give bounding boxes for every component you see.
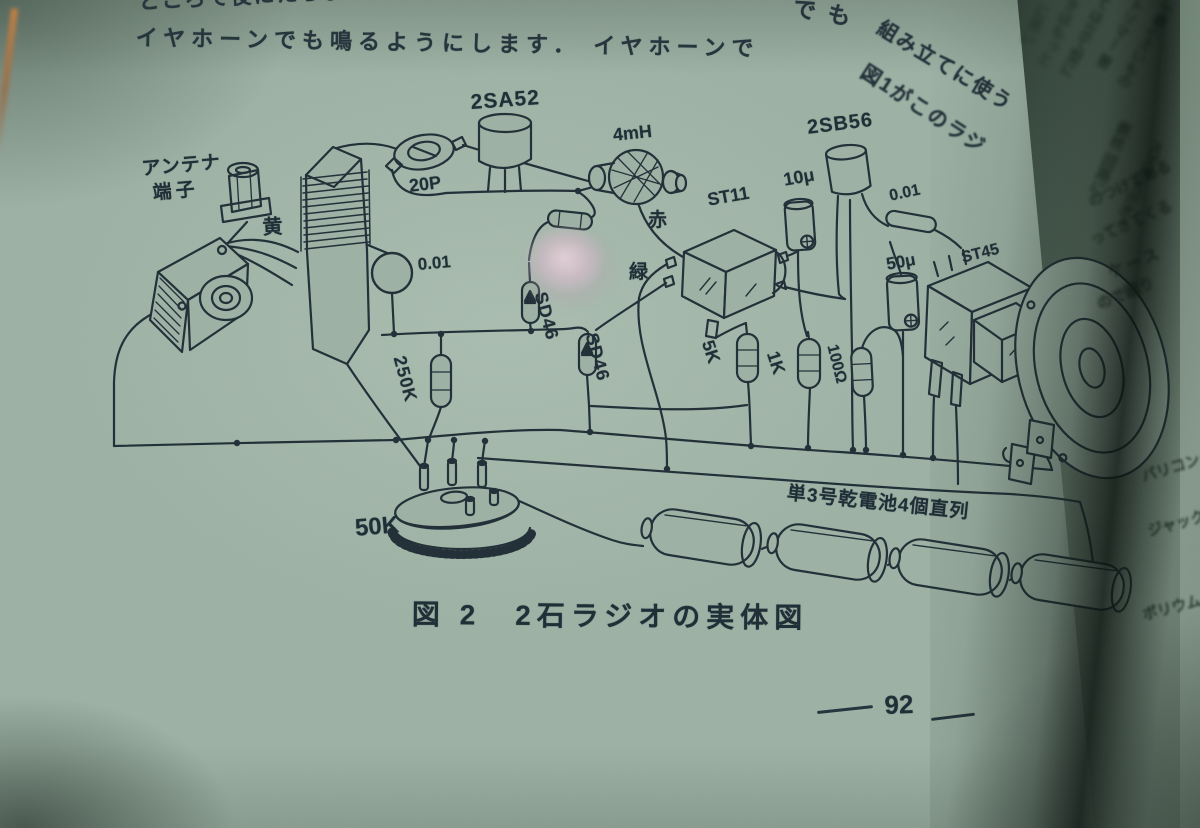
resistor-250k-drawing [431, 355, 451, 407]
small-resistor-drawing [547, 210, 592, 231]
circuit-pictorial-diagram [0, 0, 1200, 828]
disc-capacitor-drawing [372, 253, 412, 293]
page-number: 92 [884, 691, 914, 719]
label-wire-green: 緑 [629, 263, 648, 283]
label-capacitor-disc: 0.01 [417, 253, 452, 274]
label-wire-yellow: 黄 [262, 217, 283, 239]
resistor-5k-drawing [737, 334, 758, 382]
book-page-photo: ところで役にたちょう でも イヤホーンでも鳴るようにします． イヤホーンで 組み… [0, 0, 1200, 828]
resistor-1k-drawing [798, 339, 820, 388]
trimmer-capacitor-drawing [386, 130, 466, 174]
choke-coil-drawing [589, 150, 686, 204]
capacitor-10u-drawing [784, 198, 815, 251]
label-antenna-terminal-2: 端子 [152, 180, 200, 204]
resistor-100ohm-drawing [851, 348, 873, 397]
label-choke-4mh: 4mH [612, 122, 653, 145]
label-potentiometer-50k: 50K [354, 512, 400, 541]
label-trimmer-20p: 20P [408, 173, 442, 196]
transistor-2sb56-drawing [825, 143, 871, 196]
capacitor-50u-drawing [886, 272, 919, 330]
earphone-jack-drawing [150, 238, 252, 352]
transformer-st11-drawing [664, 230, 788, 338]
potentiometer-drawing [392, 459, 532, 555]
ferrite-coil-drawing [301, 147, 370, 364]
antenna-terminal-drawing [221, 163, 271, 222]
capacitor-tube-drawing [885, 210, 937, 233]
switch-drawing [1003, 420, 1054, 484]
figure-caption: 図 2 2石ラジオの実体図 [412, 600, 809, 633]
battery-cells-drawing [638, 505, 1134, 614]
transistor-2sa52-drawing [479, 114, 531, 192]
label-wire-red: 赤 [648, 211, 667, 231]
